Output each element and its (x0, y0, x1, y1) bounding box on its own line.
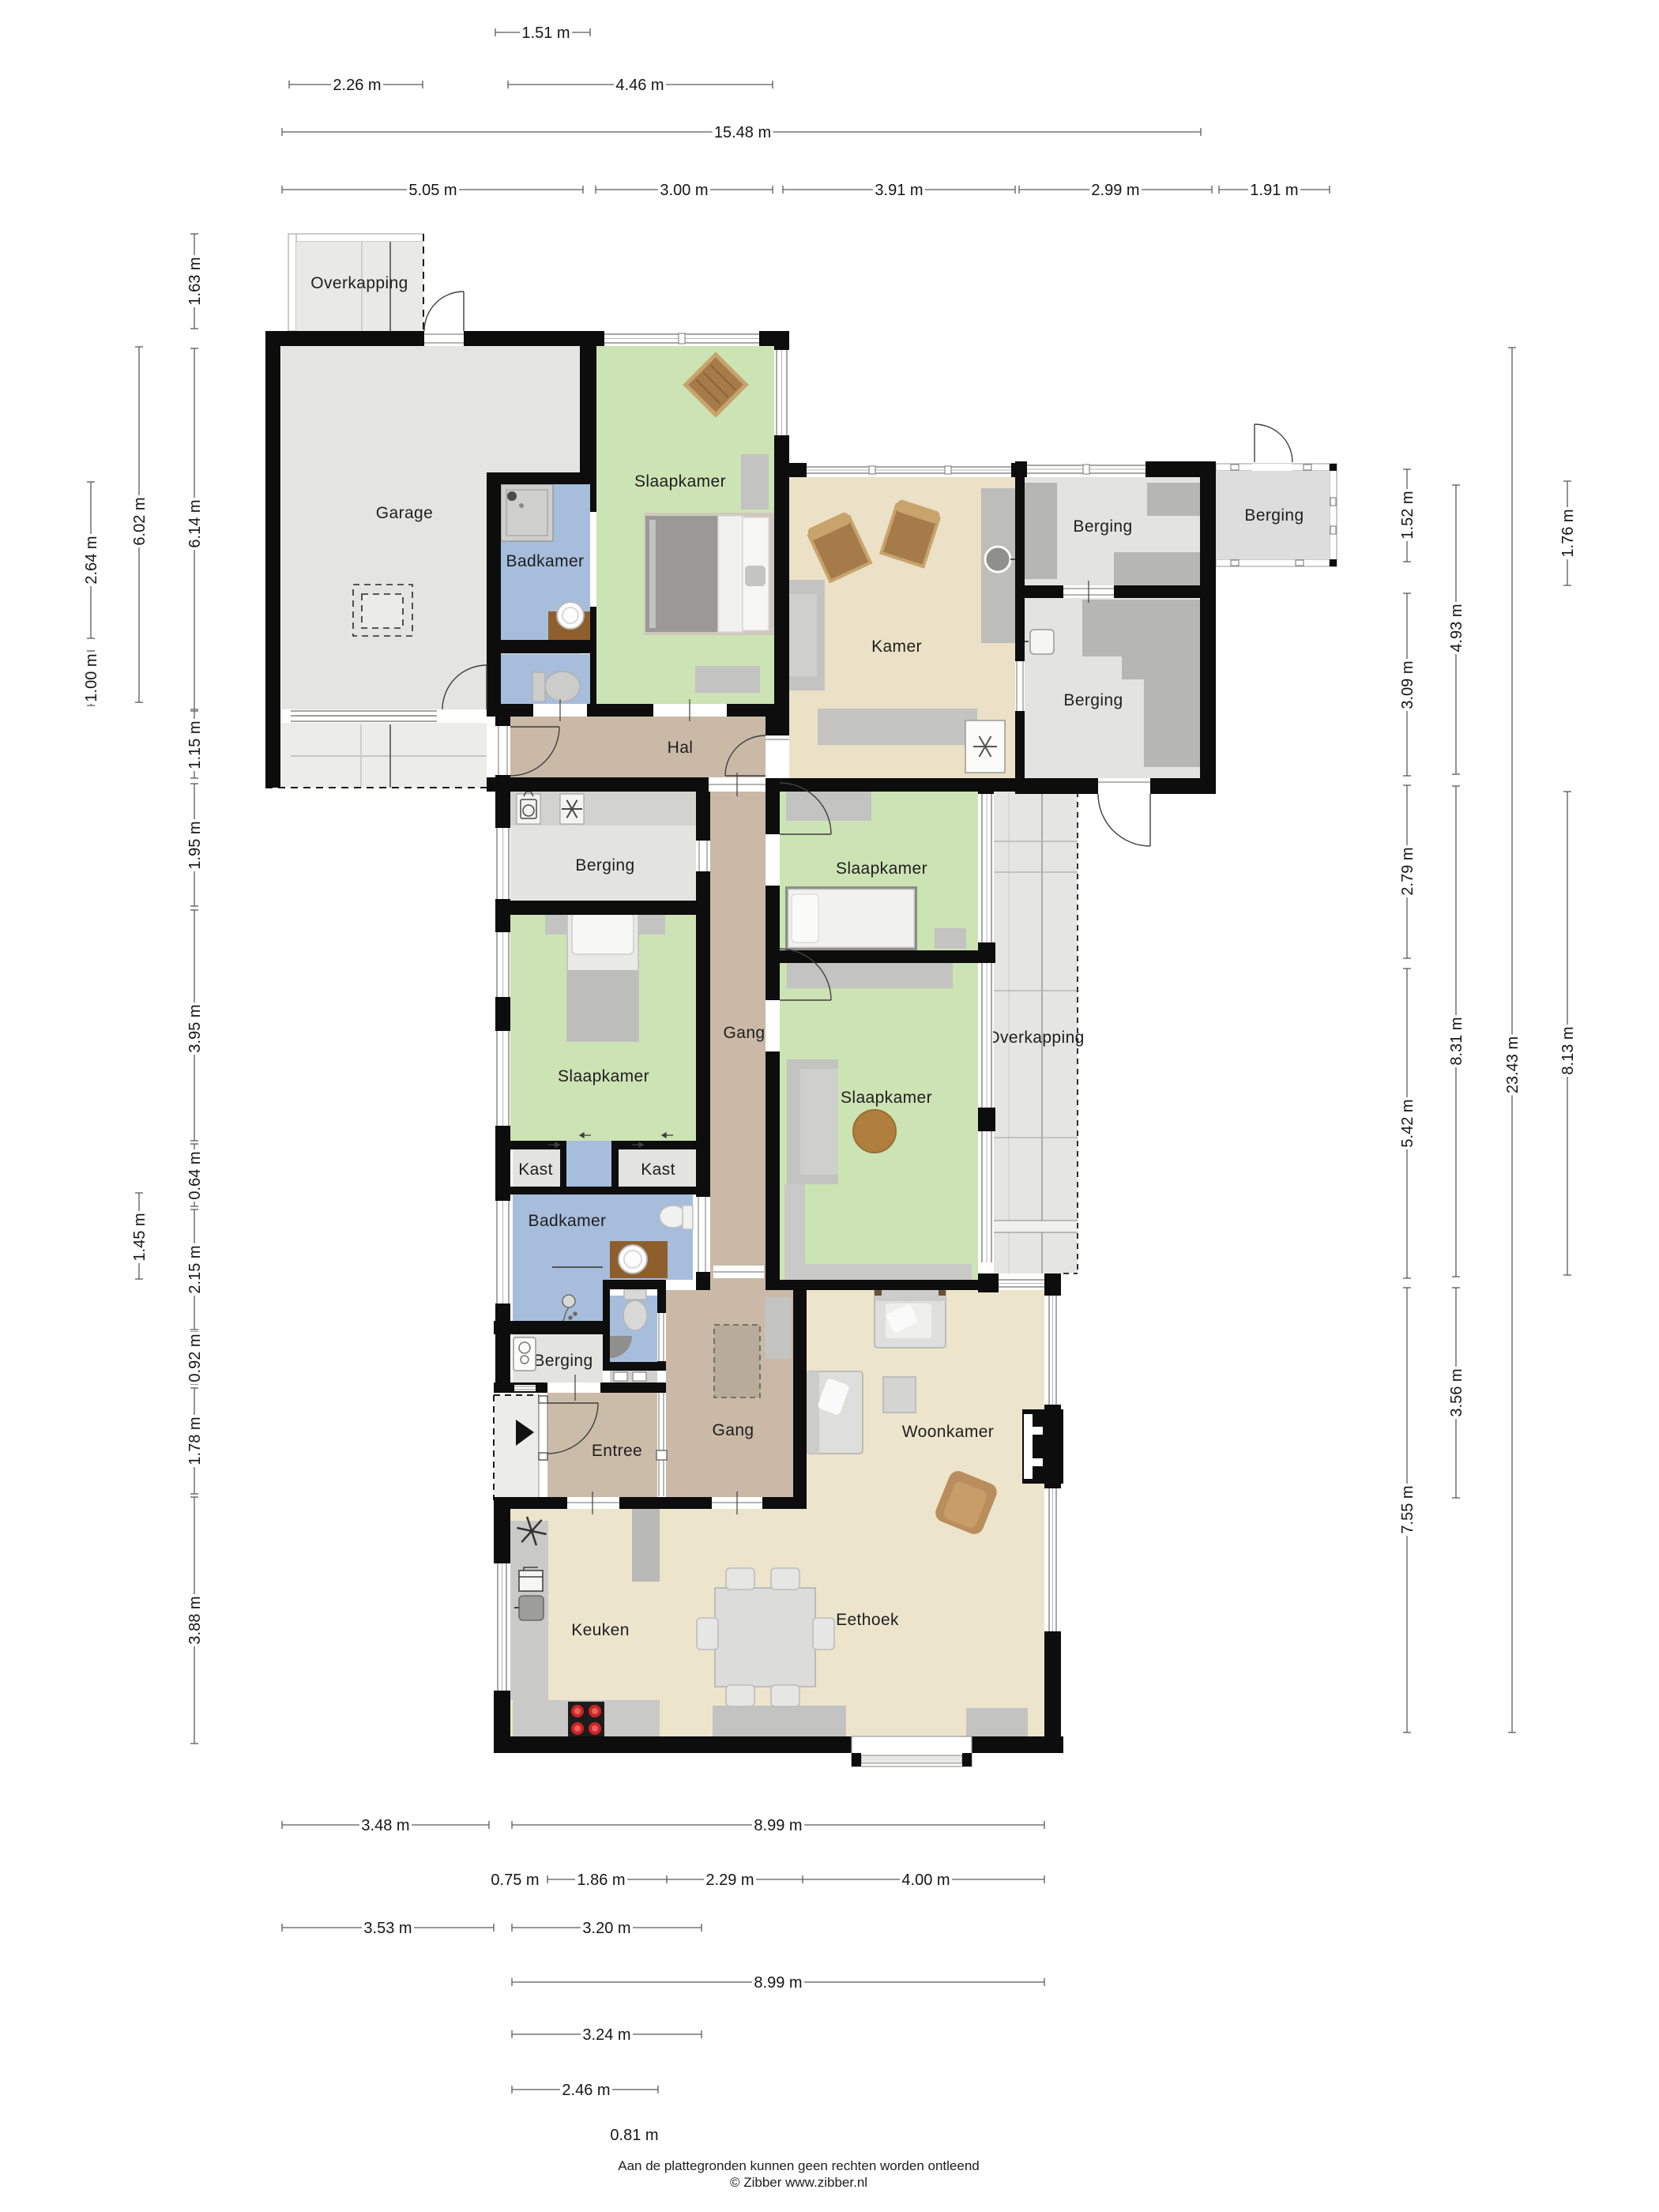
svg-text:Gang: Gang (724, 1024, 766, 1042)
svg-text:1.52 m: 1.52 m (1399, 491, 1416, 539)
svg-text:4.00 m: 4.00 m (901, 1872, 950, 1889)
svg-text:3.24 m: 3.24 m (582, 2026, 630, 2044)
svg-text:2.15 m: 2.15 m (186, 1245, 204, 1293)
svg-text:Woonkamer: Woonkamer (902, 1423, 994, 1441)
svg-text:1.76 m: 1.76 m (1559, 509, 1577, 557)
svg-text:1.45 m: 1.45 m (131, 1213, 149, 1261)
svg-text:8.99 m: 8.99 m (754, 1974, 802, 1992)
svg-text:1.78 m: 1.78 m (186, 1416, 204, 1465)
svg-text:8.13 m: 8.13 m (1559, 1026, 1577, 1074)
svg-text:3.48 m: 3.48 m (361, 1817, 409, 1834)
svg-text:15.48 m: 15.48 m (714, 124, 771, 141)
svg-text:Berging: Berging (1063, 691, 1123, 709)
svg-text:Badkamer: Badkamer (506, 552, 585, 570)
svg-text:2.29 m: 2.29 m (705, 1872, 754, 1889)
svg-text:Keuken: Keuken (571, 1621, 630, 1639)
svg-text:23.43 m: 23.43 m (1504, 1036, 1522, 1093)
svg-text:8.31 m: 8.31 m (1448, 1017, 1465, 1065)
svg-text:Kast: Kast (641, 1161, 675, 1179)
svg-text:4.46 m: 4.46 m (615, 77, 664, 94)
svg-text:0.75 m: 0.75 m (491, 1872, 539, 1889)
svg-text:Slaapkamer: Slaapkamer (558, 1067, 649, 1085)
svg-text:1.86 m: 1.86 m (577, 1872, 625, 1889)
svg-text:4.93 m: 4.93 m (1448, 604, 1465, 652)
svg-text:3.91 m: 3.91 m (875, 182, 923, 199)
svg-text:Berging: Berging (533, 1352, 592, 1370)
svg-text:0.92 m: 0.92 m (186, 1334, 204, 1382)
svg-text:1.63 m: 1.63 m (186, 257, 204, 305)
svg-text:Slaapkamer: Slaapkamer (836, 860, 927, 878)
svg-text:Kamer: Kamer (871, 638, 922, 656)
svg-text:0.64 m: 0.64 m (186, 1151, 204, 1199)
svg-text:Entree: Entree (592, 1442, 642, 1460)
svg-text:© Zibber www.zibber.nl: © Zibber www.zibber.nl (730, 2175, 867, 2190)
svg-text:1.15 m: 1.15 m (186, 720, 204, 769)
svg-text:6.02 m: 6.02 m (131, 497, 149, 545)
svg-text:8.99 m: 8.99 m (754, 1817, 802, 1834)
svg-text:3.53 m: 3.53 m (363, 1920, 412, 1937)
svg-text:2.46 m: 2.46 m (562, 2082, 610, 2099)
svg-text:Overkapping: Overkapping (310, 274, 408, 292)
svg-text:Eethoek: Eethoek (836, 1611, 899, 1629)
svg-text:3.56 m: 3.56 m (1448, 1368, 1465, 1416)
svg-text:Gang: Gang (713, 1421, 754, 1439)
svg-text:Slaapkamer: Slaapkamer (841, 1089, 932, 1107)
svg-text:1.00 m: 1.00 m (83, 653, 100, 702)
svg-text:1.51 m: 1.51 m (521, 24, 570, 42)
svg-text:3.88 m: 3.88 m (186, 1596, 204, 1644)
svg-text:7.55 m: 7.55 m (1399, 1485, 1416, 1533)
svg-text:3.95 m: 3.95 m (186, 1004, 204, 1052)
svg-text:Kast: Kast (518, 1161, 553, 1179)
svg-text:1.91 m: 1.91 m (1250, 182, 1298, 199)
svg-text:Aan de plattegronden kunnen ge: Aan de plattegronden kunnen geen rechten… (618, 2158, 979, 2173)
svg-text:0.81 m: 0.81 m (610, 2127, 658, 2144)
svg-text:3.20 m: 3.20 m (582, 1920, 630, 1937)
svg-text:Garage: Garage (376, 504, 433, 522)
svg-text:2.79 m: 2.79 m (1399, 847, 1416, 895)
svg-text:1.95 m: 1.95 m (186, 821, 204, 869)
svg-text:6.14 m: 6.14 m (186, 499, 204, 547)
svg-text:Berging: Berging (1073, 517, 1132, 536)
svg-text:Slaapkamer: Slaapkamer (634, 472, 726, 491)
svg-text:5.42 m: 5.42 m (1399, 1099, 1416, 1147)
svg-text:5.05 m: 5.05 m (408, 182, 457, 199)
svg-text:3.09 m: 3.09 m (1399, 660, 1416, 709)
svg-text:Badkamer: Badkamer (529, 1212, 607, 1230)
svg-text:Overkapping: Overkapping (987, 1029, 1084, 1047)
svg-text:2.64 m: 2.64 m (83, 536, 100, 584)
svg-text:3.00 m: 3.00 m (660, 182, 708, 199)
svg-text:Berging: Berging (1244, 506, 1303, 525)
svg-text:2.99 m: 2.99 m (1091, 182, 1139, 199)
svg-text:2.26 m: 2.26 m (333, 77, 381, 94)
svg-text:Hal: Hal (668, 739, 694, 757)
svg-text:Berging: Berging (575, 856, 634, 875)
